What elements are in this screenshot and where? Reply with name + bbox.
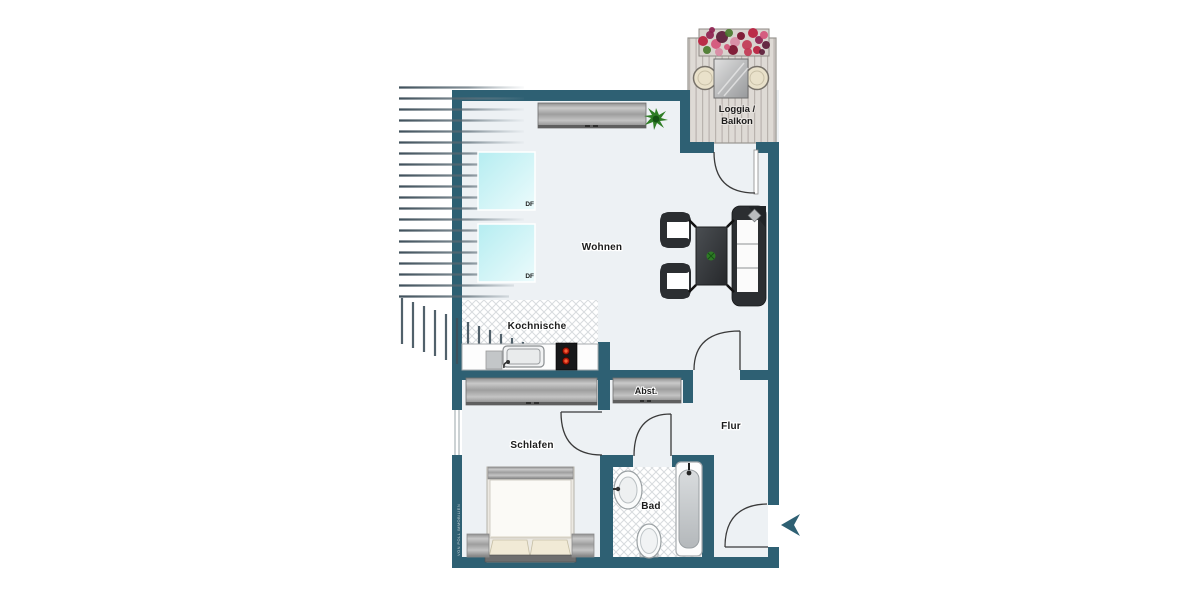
loggia-chair-left	[694, 67, 717, 90]
wall-loggia-bottom-right	[756, 142, 779, 153]
entry-arrow-icon	[781, 514, 800, 536]
wall-bath-right	[702, 467, 714, 557]
bed-pillow-left	[489, 540, 530, 557]
wall-kitchen-stub	[598, 342, 610, 410]
armchair-2	[661, 264, 690, 298]
loggia-chair-right	[746, 67, 769, 90]
basin-faucet-icon	[616, 487, 620, 491]
nightstand-right	[572, 534, 594, 557]
bed-headboard	[485, 555, 576, 562]
bed-duvet	[490, 480, 571, 538]
coffee-table	[689, 220, 734, 292]
wall-bedroom-bath	[600, 455, 613, 557]
bathtub	[676, 462, 702, 556]
watermark: VON POLL IMMOBILIEN	[456, 504, 461, 556]
toilet	[637, 524, 661, 558]
label-skylight-2: DF	[525, 273, 534, 280]
label-storage: Abst.	[635, 386, 658, 396]
armchair-1	[661, 213, 690, 247]
wall-bath-top-left	[600, 455, 633, 467]
wall-living-hall	[740, 370, 768, 380]
label-kitchenette: Kochnische	[508, 321, 567, 332]
wall-loggia-bottom-left	[680, 142, 714, 153]
bedroom-window	[452, 410, 462, 455]
sideboard	[538, 103, 646, 128]
kitchenette	[462, 343, 598, 370]
tub-faucet-icon	[687, 471, 692, 476]
bed-pillow-right	[530, 540, 571, 557]
double-bed	[485, 467, 576, 562]
label-bathroom: Bad	[641, 501, 661, 512]
label-skylight-1: DF	[525, 201, 534, 208]
bed-footboard	[488, 467, 573, 479]
sofa	[732, 206, 766, 306]
wall-right-upper	[768, 153, 779, 505]
floorplan-svg: Wohnen Kochnische Schlafen Bad Flur Abst…	[0, 0, 1200, 600]
label-living-room: Wohnen	[582, 242, 622, 253]
floorplan-canvas: Wohnen Kochnische Schlafen Bad Flur Abst…	[0, 0, 1200, 600]
kitchen-sink	[503, 346, 544, 368]
balcony-door-leaf	[754, 150, 758, 194]
nightstand-left	[467, 534, 489, 557]
stove	[556, 343, 577, 370]
label-loggia-line1: Loggia /	[719, 104, 756, 115]
label-hallway: Flur	[721, 421, 741, 432]
label-loggia-line2: Balkon	[721, 116, 753, 127]
entry-opening	[768, 505, 779, 547]
wall-storage-right	[683, 370, 693, 403]
kitchen-cabinet	[486, 351, 502, 369]
wardrobe	[466, 378, 597, 405]
label-bedroom: Schlafen	[510, 440, 553, 451]
washbasin	[613, 471, 642, 509]
